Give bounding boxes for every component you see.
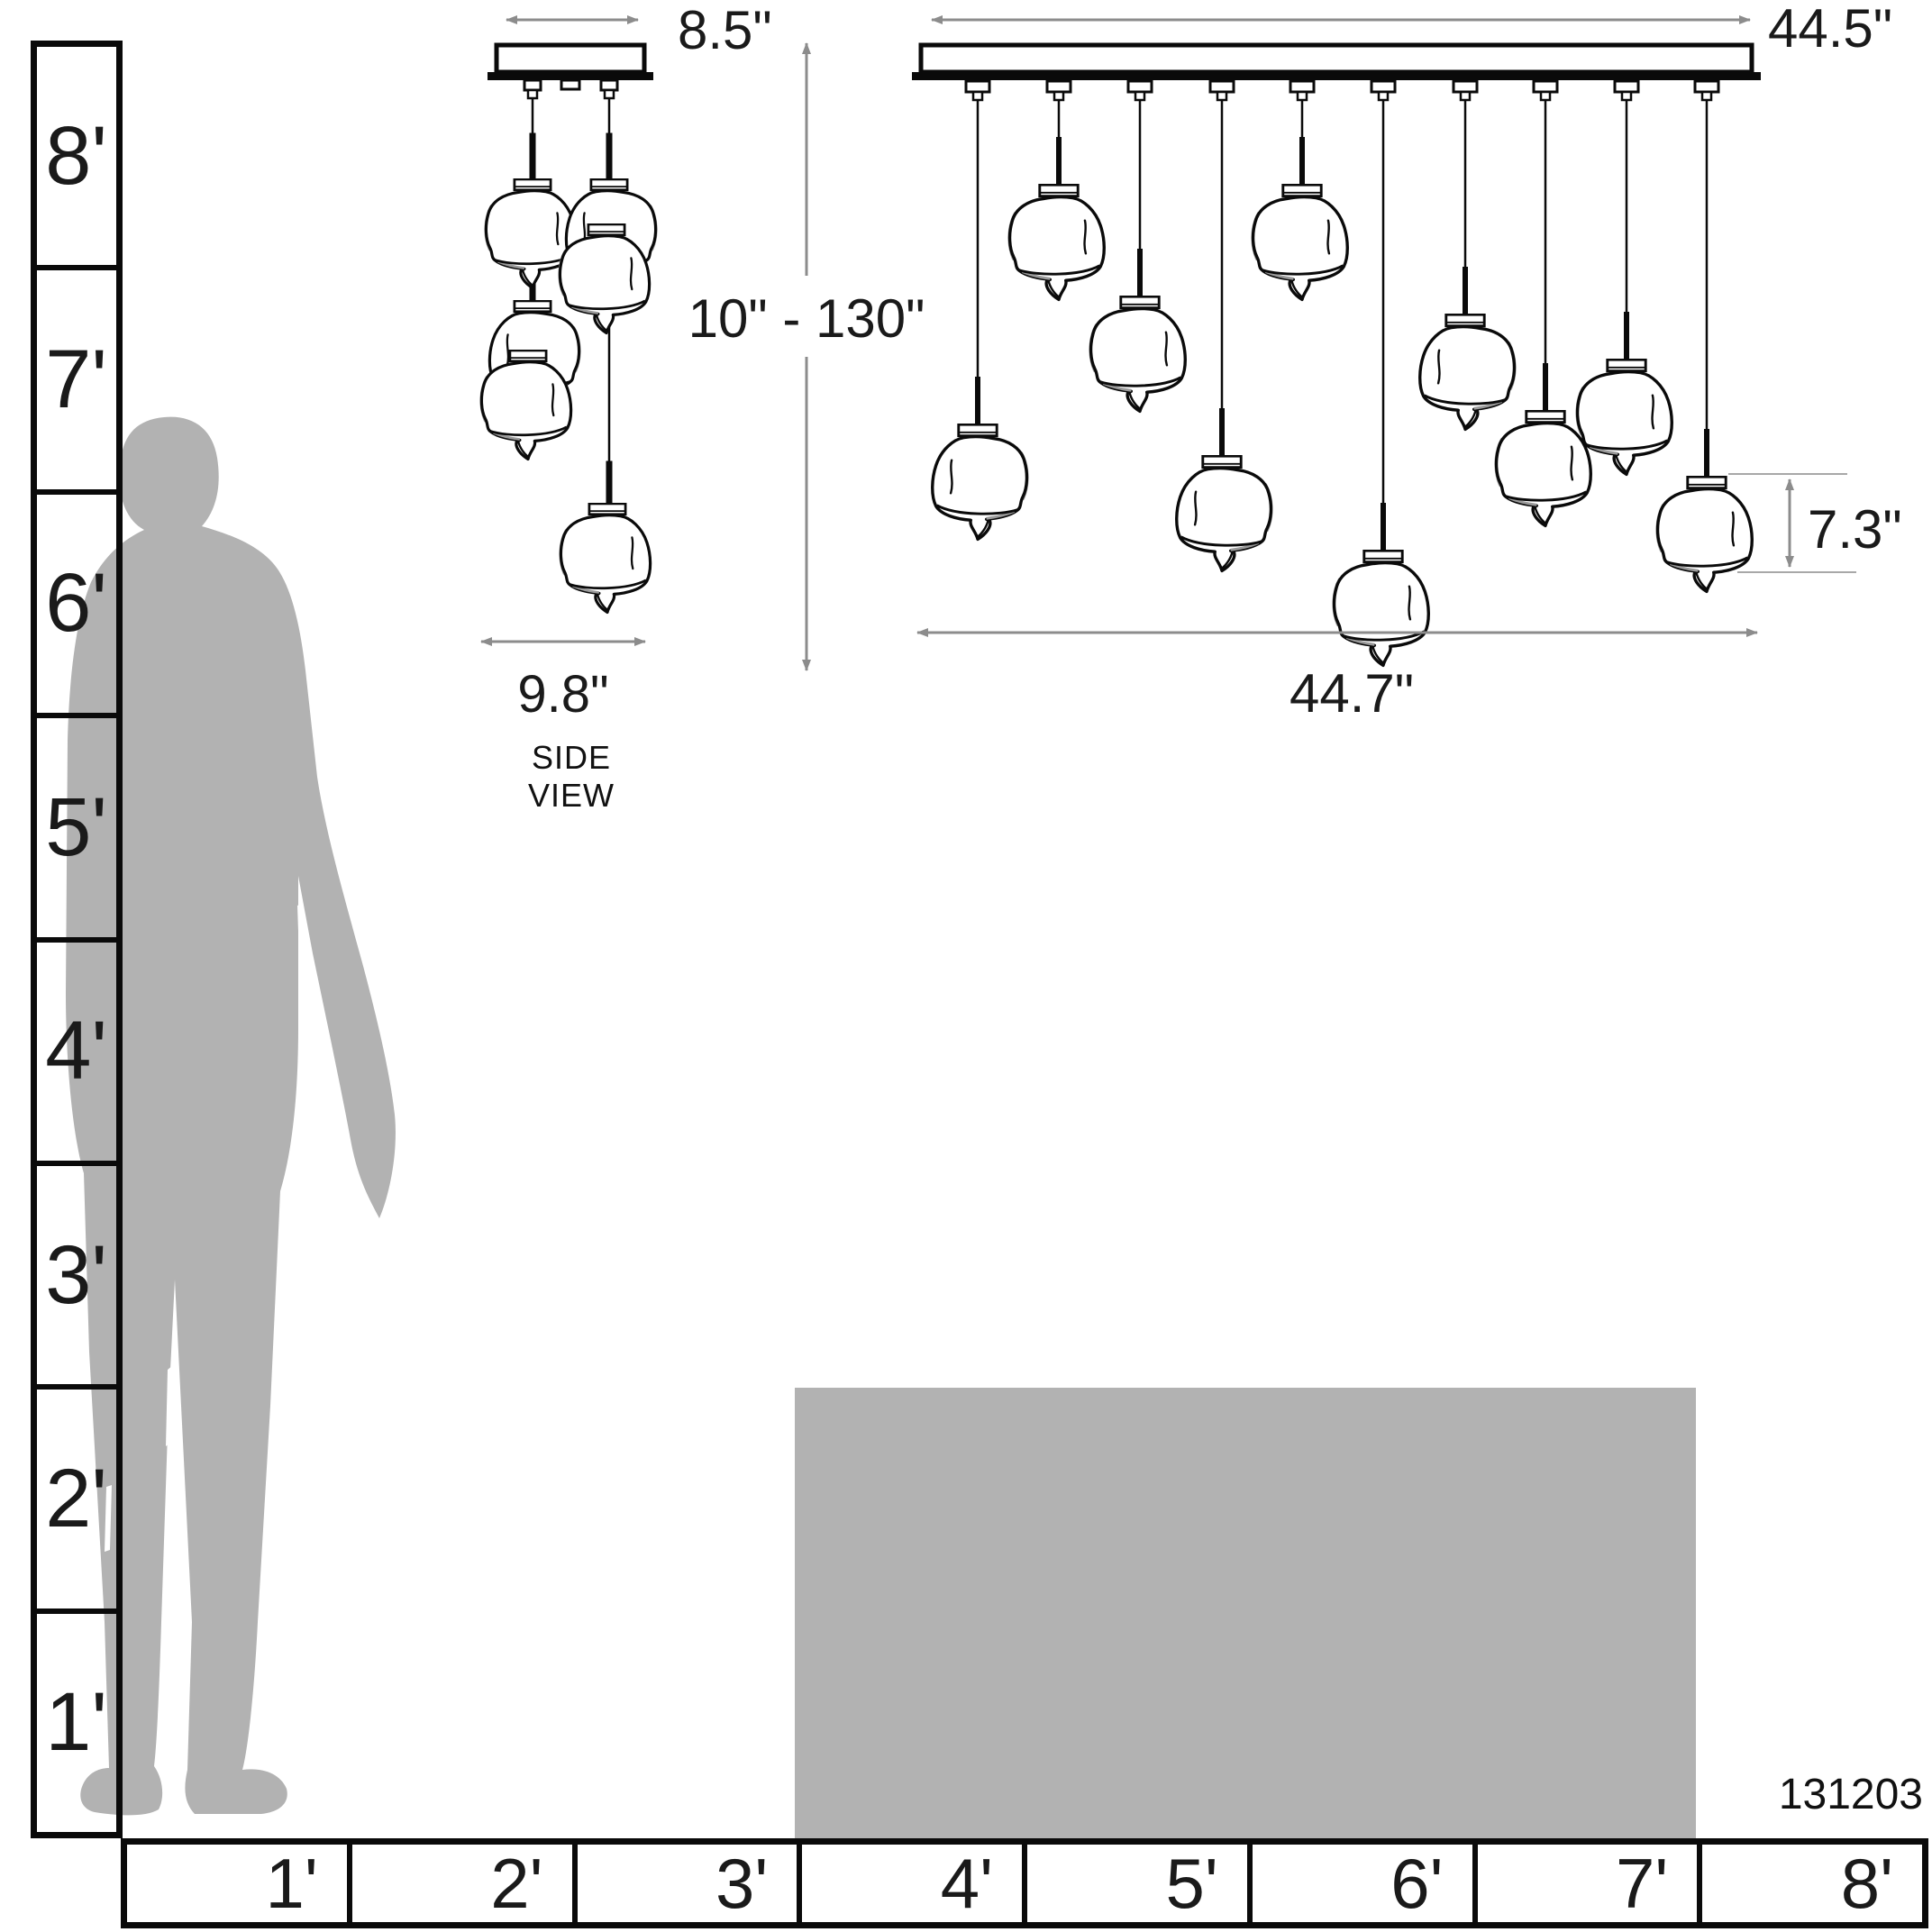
ruler-cell: 2' (347, 1845, 572, 1922)
vertical-height-ruler: 8' 7' 6' 5' 4' 3' 2' 1' (31, 41, 123, 1838)
part-number: 131203 (1779, 1770, 1923, 1819)
front-canopy-length-label: 44.5" (1768, 2, 1892, 56)
suspension-range-label: 10" - 130" (676, 292, 937, 346)
ruler-cell: 5' (1022, 1845, 1247, 1922)
side-cluster-width-label: 9.8" (500, 669, 626, 721)
dimension-diagram-page: 8.5" 44.5" 10" - 130" 7.3" 44.7" 9.8" SI… (0, 0, 1932, 1932)
ruler-cell: 4' (37, 937, 116, 1161)
diagram-artwork (0, 0, 1932, 1932)
front-canopy (912, 45, 1761, 80)
front-overall-width-label: 44.7" (1244, 667, 1460, 721)
ruler-cell: 8' (37, 47, 116, 265)
front-view-drawing (912, 45, 1761, 665)
ruler-cell: 5' (37, 713, 116, 936)
side-pendant-cluster (481, 179, 656, 613)
ruler-cell: 1' (127, 1845, 347, 1922)
ruler-cell: 3' (572, 1845, 797, 1922)
ruler-cell: 1' (37, 1608, 116, 1832)
side-view-drawing (481, 45, 656, 612)
ruler-cell: 3' (37, 1161, 116, 1384)
ruler-cell: 6' (37, 489, 116, 713)
ruler-cell: 4' (797, 1845, 1022, 1922)
ruler-cell: 6' (1247, 1845, 1472, 1922)
side-canopy-width-label: 8.5" (678, 4, 772, 58)
horizontal-width-ruler: 1' 2' 3' 4' 5' 6' 7' 8' (121, 1838, 1928, 1928)
side-view-caption: SIDE VIEW (491, 739, 652, 815)
ruler-cell: 7' (1472, 1845, 1698, 1922)
front-pendant-shades (933, 185, 1753, 665)
ruler-cell: 8' (1697, 1845, 1922, 1922)
shade-height-label: 7.3" (1808, 503, 1902, 557)
ruler-cell: 2' (37, 1384, 116, 1608)
front-cords (966, 81, 1718, 550)
ruler-cell: 7' (37, 265, 116, 488)
side-canopy (488, 45, 653, 89)
